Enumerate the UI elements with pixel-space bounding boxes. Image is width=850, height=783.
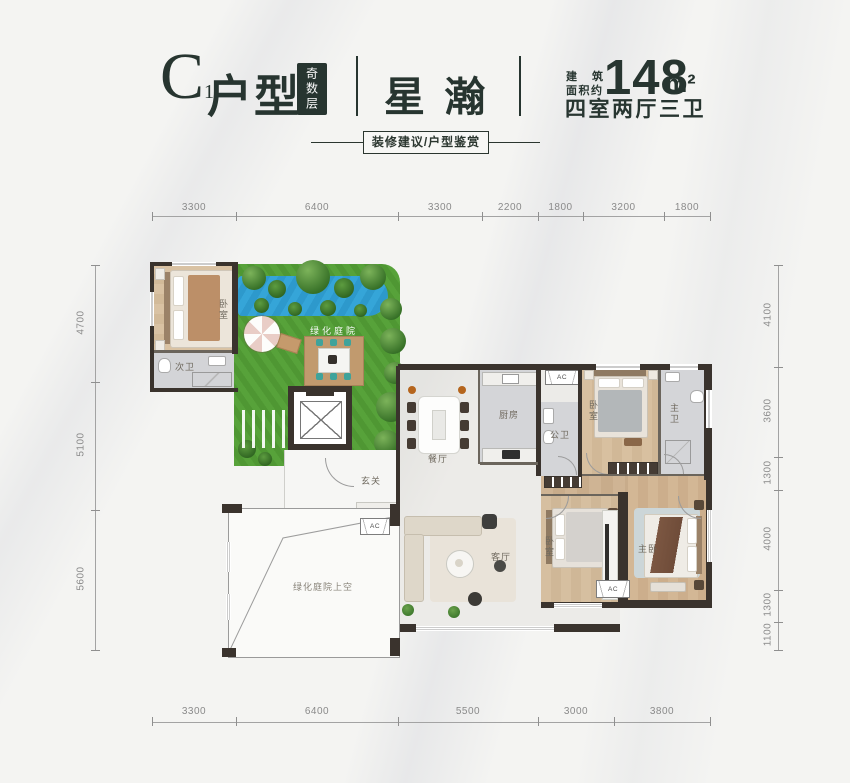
tree-icon bbox=[296, 260, 330, 294]
window bbox=[670, 364, 698, 370]
bush-icon bbox=[334, 278, 354, 298]
plant-icon bbox=[402, 604, 414, 616]
wall bbox=[150, 262, 154, 392]
room-label-garden: 绿化庭院 bbox=[298, 326, 370, 337]
dining-chair bbox=[460, 438, 469, 449]
bush-icon bbox=[254, 298, 269, 313]
tick bbox=[774, 367, 783, 368]
tick bbox=[710, 212, 711, 221]
window bbox=[226, 594, 231, 620]
cta-line-right bbox=[488, 142, 540, 143]
tick bbox=[538, 717, 539, 726]
dim-top: 2200 bbox=[482, 202, 538, 213]
ac-unit: AC bbox=[360, 518, 390, 535]
room-label-bath-master: 主卫 bbox=[668, 402, 679, 426]
tick bbox=[774, 457, 783, 458]
dim-top: 1800 bbox=[538, 202, 583, 213]
tick bbox=[664, 212, 665, 221]
window bbox=[150, 292, 154, 326]
pillow bbox=[622, 378, 644, 388]
dining-chair bbox=[407, 420, 416, 431]
garden-chair bbox=[316, 339, 323, 346]
table-centerpiece bbox=[328, 355, 337, 364]
room-label-bath-secondary: 次卫 bbox=[172, 362, 198, 373]
garden-chair bbox=[330, 339, 337, 346]
garden-chair bbox=[344, 373, 351, 380]
partition-wall bbox=[480, 462, 538, 465]
garden-chair bbox=[344, 339, 351, 346]
wall bbox=[150, 388, 238, 392]
stove bbox=[502, 450, 520, 459]
sink bbox=[208, 356, 226, 366]
tick bbox=[91, 650, 100, 651]
dim-bottom: 5500 bbox=[398, 706, 538, 717]
room-label-dining: 餐厅 bbox=[422, 454, 454, 465]
tick bbox=[774, 590, 783, 591]
nightstand bbox=[584, 370, 594, 380]
wardrobe bbox=[544, 476, 582, 488]
pillow bbox=[173, 310, 184, 340]
tick bbox=[538, 212, 539, 221]
unit-type: 户型 bbox=[207, 60, 301, 125]
dim-bottom: 3800 bbox=[614, 706, 710, 717]
dim-left: 5100 bbox=[76, 417, 87, 473]
floorplan: 绿化庭院 卧室 次卫 玄关 bbox=[150, 262, 712, 662]
window bbox=[707, 510, 712, 562]
tick bbox=[91, 382, 100, 383]
tick bbox=[774, 622, 783, 623]
unit-code: C1 bbox=[160, 44, 214, 110]
room-label-living: 客厅 bbox=[486, 552, 516, 563]
bed-blanket bbox=[566, 512, 604, 562]
dim-top: 6400 bbox=[236, 202, 398, 213]
tick bbox=[583, 212, 584, 221]
sink bbox=[665, 372, 680, 382]
wall bbox=[398, 364, 710, 370]
bush-icon bbox=[258, 452, 272, 466]
room-label-foyer: 玄关 bbox=[354, 476, 388, 487]
kitchen-sink bbox=[502, 374, 519, 384]
window bbox=[706, 390, 712, 428]
nightstand bbox=[155, 268, 165, 280]
bench bbox=[624, 438, 642, 446]
bush-icon bbox=[288, 302, 302, 316]
wall bbox=[628, 600, 712, 608]
dim-bottom: 6400 bbox=[236, 706, 398, 717]
window bbox=[172, 262, 216, 266]
pouf bbox=[468, 592, 482, 606]
tick bbox=[774, 265, 783, 266]
tick bbox=[236, 212, 237, 221]
dining-chair bbox=[407, 438, 416, 449]
toilet bbox=[690, 390, 704, 403]
wall bbox=[222, 648, 236, 657]
dining-chair bbox=[460, 402, 469, 413]
armchair bbox=[482, 514, 497, 529]
wall bbox=[398, 624, 416, 632]
dim-top: 1800 bbox=[664, 202, 710, 213]
unit-letter: C bbox=[160, 40, 204, 113]
wall bbox=[222, 504, 242, 513]
pillow bbox=[687, 518, 697, 544]
umbrella-icon bbox=[244, 316, 280, 352]
tree-icon bbox=[380, 298, 402, 320]
tree-icon bbox=[360, 264, 386, 290]
tick bbox=[398, 717, 399, 726]
dim-line-left bbox=[95, 265, 96, 650]
tick bbox=[152, 717, 153, 726]
sofa bbox=[404, 534, 424, 602]
tv bbox=[605, 524, 609, 580]
tick bbox=[614, 717, 615, 726]
header-divider bbox=[356, 56, 358, 116]
toilet bbox=[158, 358, 171, 373]
bed-headboard bbox=[594, 370, 646, 376]
shower-area bbox=[192, 372, 232, 387]
wall bbox=[390, 504, 400, 526]
cta-button[interactable]: 装修建议/户型鉴赏 bbox=[363, 131, 489, 154]
sofa-chaise bbox=[404, 516, 482, 536]
tick bbox=[236, 717, 237, 726]
room-label-bedroom-nw: 卧室 bbox=[216, 296, 228, 324]
table-runner bbox=[432, 410, 446, 440]
ac-unit: AC bbox=[545, 370, 579, 385]
dim-right: 4100 bbox=[763, 291, 774, 339]
wall bbox=[554, 624, 620, 632]
dim-bottom: 3300 bbox=[152, 706, 236, 717]
garden-chair bbox=[330, 373, 337, 380]
bush-icon bbox=[320, 300, 336, 316]
bench bbox=[650, 582, 686, 592]
dining-chair bbox=[460, 420, 469, 431]
pillow bbox=[555, 538, 565, 560]
wall bbox=[396, 366, 400, 516]
dim-top: 3300 bbox=[398, 202, 482, 213]
window bbox=[416, 626, 554, 631]
plant-icon bbox=[448, 606, 460, 618]
elevator-lintel bbox=[306, 390, 334, 396]
pillow bbox=[173, 276, 184, 306]
wall bbox=[390, 638, 400, 656]
tick bbox=[152, 212, 153, 221]
sink bbox=[543, 408, 554, 424]
layout-text: 四室两厅三卫 bbox=[565, 93, 706, 123]
tree-icon bbox=[380, 328, 406, 354]
coffee-table-decor bbox=[455, 559, 463, 567]
tick bbox=[91, 265, 100, 266]
pillow bbox=[555, 514, 565, 536]
plant-pot bbox=[408, 386, 416, 394]
bush-icon bbox=[268, 280, 286, 298]
nightstand bbox=[648, 370, 658, 380]
dim-right: 4000 bbox=[763, 515, 774, 563]
tick bbox=[774, 650, 783, 651]
nightstand bbox=[694, 580, 704, 590]
cta-line-left bbox=[311, 142, 363, 143]
dining-chair bbox=[407, 402, 416, 413]
bush-icon bbox=[354, 304, 367, 317]
window bbox=[596, 364, 640, 370]
tick bbox=[398, 212, 399, 221]
tick bbox=[482, 212, 483, 221]
project-name: 星 瀚 bbox=[384, 63, 489, 123]
wall bbox=[232, 262, 238, 354]
dim-right: 3600 bbox=[763, 387, 774, 435]
dim-right: 1100 bbox=[763, 611, 774, 659]
window bbox=[226, 542, 231, 572]
elevator-car bbox=[300, 401, 342, 439]
floorplan-page: C1 户型 奇数层 星 瀚 建 筑 面积约 148 m² 四室两厅三卫 装修建议… bbox=[0, 0, 850, 783]
room-label-bedroom-south: 卧室 bbox=[543, 534, 554, 560]
dim-top: 3200 bbox=[583, 202, 664, 213]
tick bbox=[91, 510, 100, 511]
dim-right: 1300 bbox=[763, 449, 774, 497]
ac-unit: AC bbox=[596, 580, 630, 598]
dim-left: 4700 bbox=[76, 295, 87, 351]
bed-headboard bbox=[164, 272, 170, 344]
pillow bbox=[598, 378, 620, 388]
window bbox=[554, 603, 602, 608]
dim-bottom: 3000 bbox=[538, 706, 614, 717]
bed-blanket bbox=[598, 390, 642, 432]
tree-icon bbox=[242, 266, 266, 290]
dim-left: 5600 bbox=[76, 551, 87, 607]
dim-top: 3300 bbox=[152, 202, 236, 213]
partition-wall bbox=[478, 370, 480, 464]
room-label-courtyard-void: 绿化庭院上空 bbox=[268, 582, 378, 593]
tick bbox=[710, 717, 711, 726]
tick bbox=[774, 490, 783, 491]
header-divider bbox=[519, 56, 521, 116]
room-label-bedroom-master: 主卧 bbox=[636, 544, 660, 555]
garden-chair bbox=[316, 373, 323, 380]
room-label-bath-public: 公卫 bbox=[546, 430, 574, 441]
room-label-bedroom-ne: 卧室 bbox=[587, 398, 598, 424]
floor-badge: 奇数层 bbox=[297, 63, 327, 115]
pillow bbox=[687, 546, 697, 572]
plant-pot bbox=[458, 386, 466, 394]
room-label-kitchen: 厨房 bbox=[492, 410, 526, 421]
